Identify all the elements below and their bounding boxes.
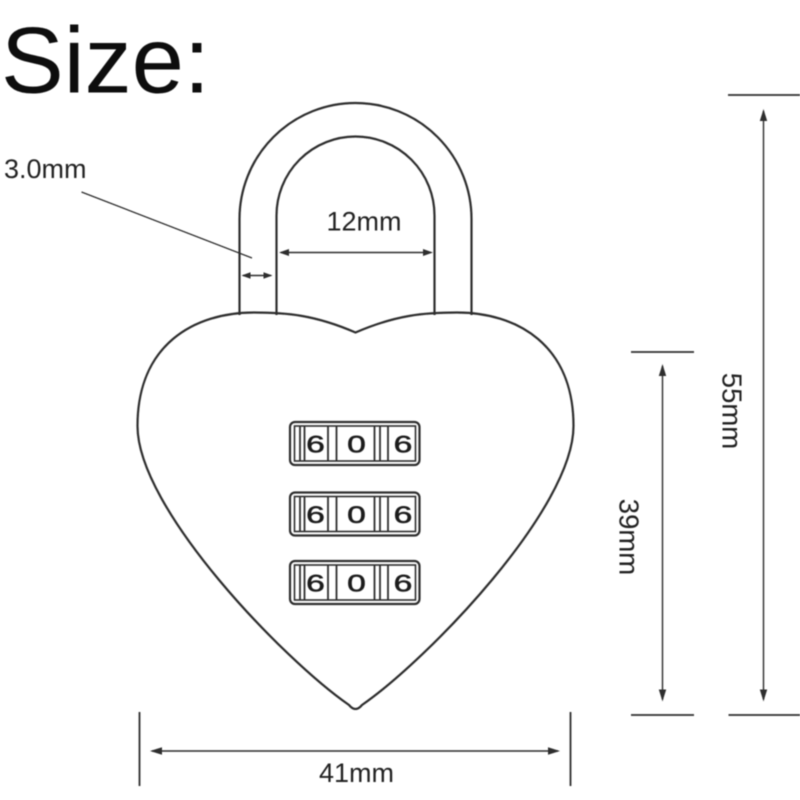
svg-text:6: 6 bbox=[306, 502, 325, 528]
svg-text:6: 6 bbox=[306, 571, 325, 597]
svg-text:3.0mm: 3.0mm bbox=[4, 154, 87, 184]
svg-text:39mm: 39mm bbox=[614, 499, 645, 575]
svg-text:0: 0 bbox=[347, 571, 366, 597]
svg-text:55mm: 55mm bbox=[717, 373, 748, 449]
svg-text:0: 0 bbox=[347, 502, 366, 528]
svg-text:12mm: 12mm bbox=[326, 207, 401, 237]
svg-text:6: 6 bbox=[306, 432, 325, 458]
svg-text:6: 6 bbox=[394, 432, 413, 458]
svg-text:41mm: 41mm bbox=[319, 758, 394, 788]
svg-text:Size:: Size: bbox=[1, 8, 210, 113]
svg-text:6: 6 bbox=[394, 571, 413, 597]
svg-text:0: 0 bbox=[347, 432, 366, 458]
svg-text:6: 6 bbox=[394, 502, 413, 528]
